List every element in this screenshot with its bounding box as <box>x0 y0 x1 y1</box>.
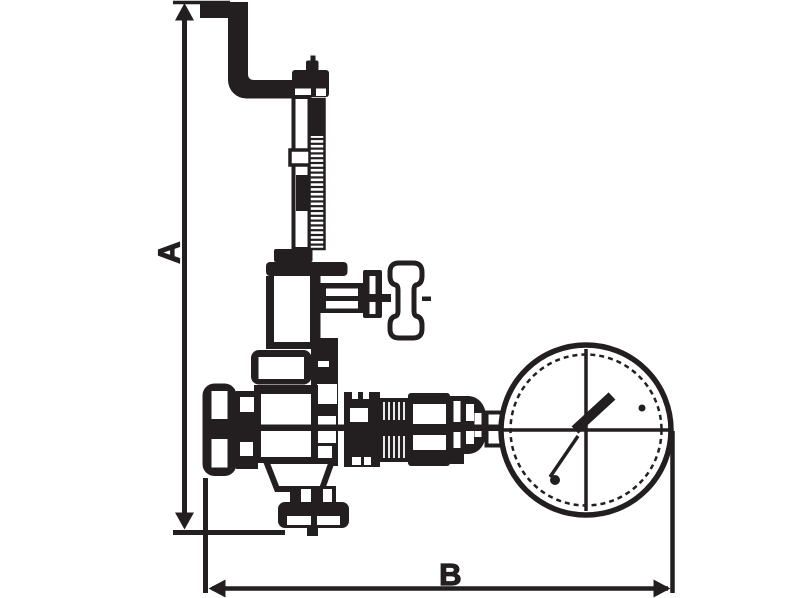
svg-text:A: A <box>152 241 187 263</box>
svg-text:B: B <box>439 557 461 592</box>
